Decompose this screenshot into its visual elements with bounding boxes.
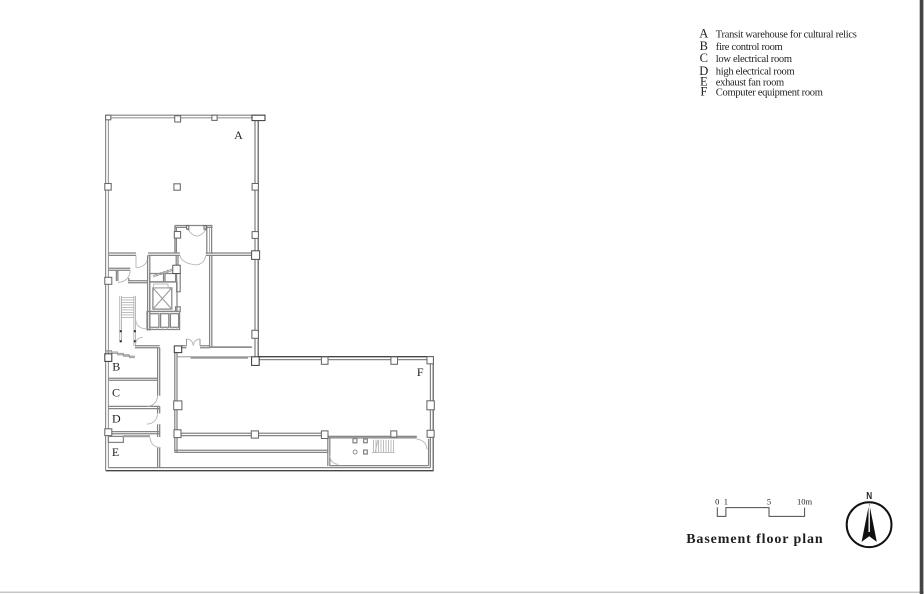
svg-text:high electrical room: high electrical room — [716, 67, 795, 78]
svg-text:N: N — [866, 489, 872, 501]
svg-text:1: 1 — [724, 497, 728, 507]
svg-text:fire control room: fire control room — [716, 42, 783, 53]
svg-text:F: F — [417, 365, 424, 379]
svg-text:10m: 10m — [797, 497, 813, 507]
svg-text:F: F — [700, 85, 707, 99]
svg-text:Basement floor plan: Basement floor plan — [686, 532, 823, 547]
svg-text:0: 0 — [715, 497, 719, 507]
svg-text:Computer equipment room: Computer equipment room — [716, 88, 823, 99]
svg-text:D: D — [112, 412, 121, 426]
svg-text:Transit warehouse for cultural: Transit warehouse for cultural relics — [716, 29, 857, 40]
svg-text:C: C — [112, 385, 120, 399]
svg-text:5: 5 — [767, 497, 771, 507]
svg-text:E: E — [112, 445, 119, 459]
svg-text:B: B — [112, 360, 120, 374]
svg-text:A: A — [234, 128, 243, 142]
svg-text:low electrical room: low electrical room — [716, 54, 792, 65]
